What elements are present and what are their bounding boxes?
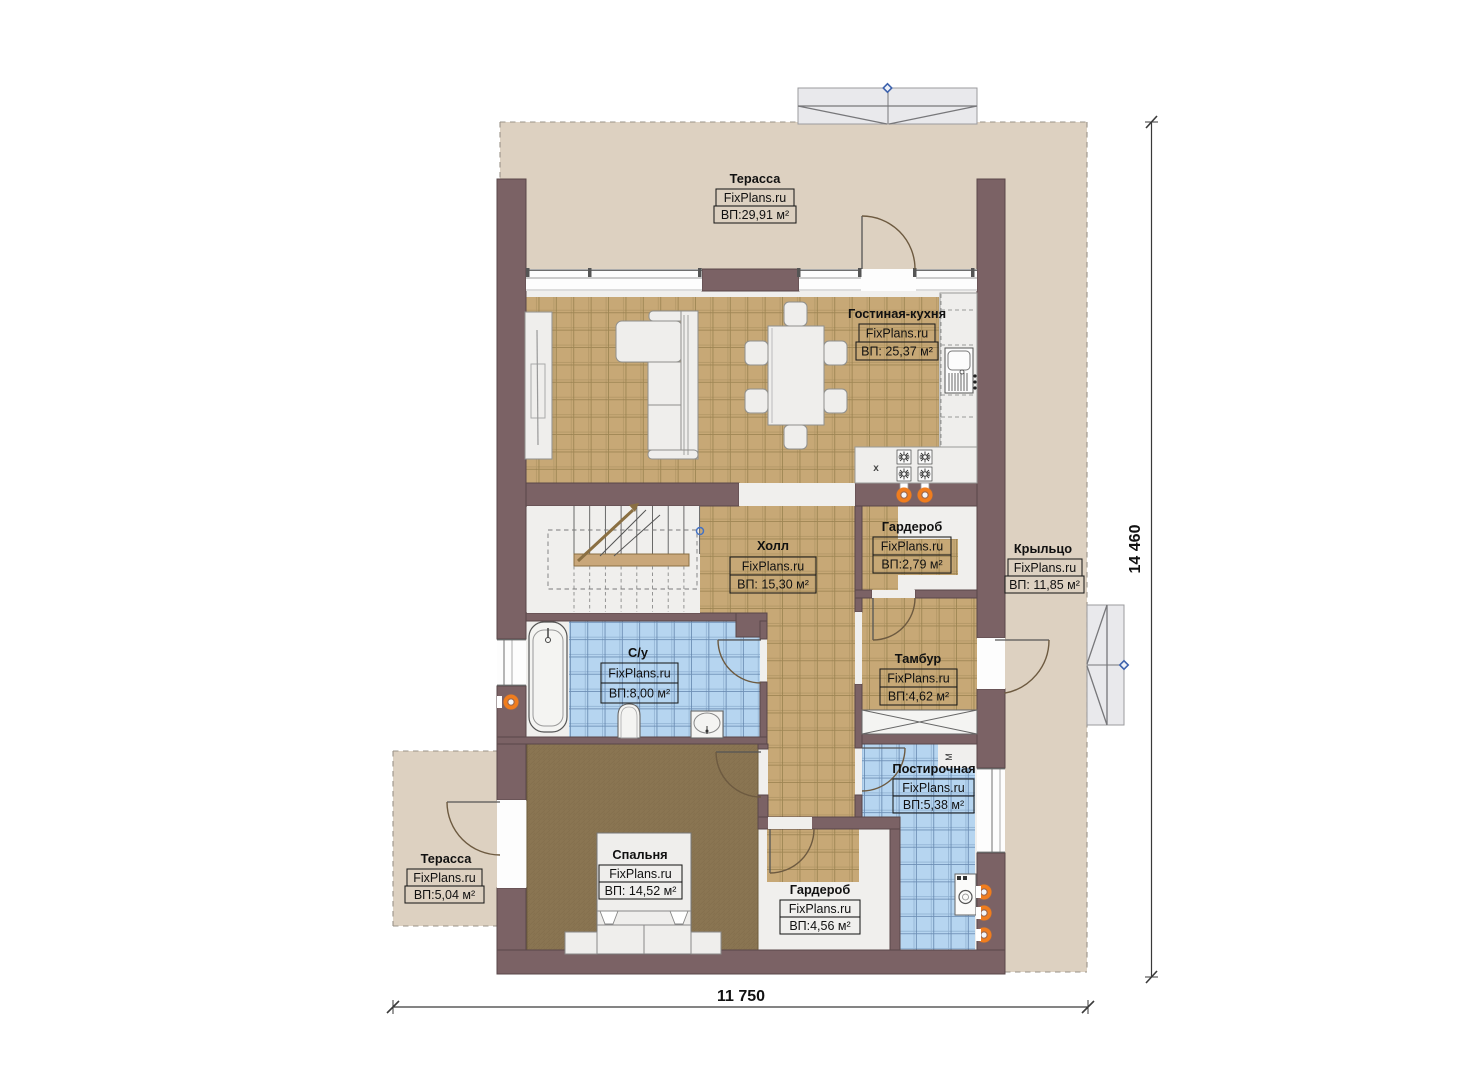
svg-text:ВП: 14,52 м²: ВП: 14,52 м² <box>605 884 677 898</box>
svg-text:С/у: С/у <box>628 645 649 660</box>
svg-text:FixPlans.ru: FixPlans.ru <box>724 191 787 205</box>
svg-text:ВП:29,91 м²: ВП:29,91 м² <box>721 208 789 222</box>
svg-text:ВП: 25,37 м²: ВП: 25,37 м² <box>861 345 933 359</box>
svg-text:Спальня: Спальня <box>612 847 667 862</box>
svg-text:FixPlans.ru: FixPlans.ru <box>609 867 672 881</box>
svg-text:Терасса: Терасса <box>421 851 473 866</box>
svg-text:Гардероб: Гардероб <box>790 882 851 897</box>
svg-text:FixPlans.ru: FixPlans.ru <box>881 540 944 554</box>
svg-text:FixPlans.ru: FixPlans.ru <box>789 902 852 916</box>
svg-text:Тамбур: Тамбур <box>895 651 942 666</box>
svg-text:Гостиная-кухня: Гостиная-кухня <box>848 306 946 321</box>
svg-text:ВП:2,79 м²: ВП:2,79 м² <box>881 558 942 572</box>
svg-text:FixPlans.ru: FixPlans.ru <box>413 871 476 885</box>
svg-text:Постирочная: Постирочная <box>892 761 975 776</box>
svg-text:ВП:5,38 м²: ВП:5,38 м² <box>903 798 964 812</box>
svg-text:FixPlans.ru: FixPlans.ru <box>887 672 950 686</box>
svg-text:FixPlans.ru: FixPlans.ru <box>866 327 929 341</box>
svg-text:ВП: 15,30 м²: ВП: 15,30 м² <box>737 578 809 592</box>
svg-text:Терасса: Терасса <box>730 171 782 186</box>
svg-text:ВП:4,56 м²: ВП:4,56 м² <box>789 919 850 933</box>
svg-text:Гардероб: Гардероб <box>882 519 943 534</box>
svg-text:FixPlans.ru: FixPlans.ru <box>902 781 965 795</box>
svg-text:Крыльцо: Крыльцо <box>1014 541 1072 556</box>
svg-text:FixPlans.ru: FixPlans.ru <box>742 560 805 574</box>
svg-text:Холл: Холл <box>757 538 789 553</box>
svg-text:ВП:4,62 м²: ВП:4,62 м² <box>888 690 949 704</box>
svg-text:FixPlans.ru: FixPlans.ru <box>608 667 671 681</box>
svg-text:ВП:8,00 м²: ВП:8,00 м² <box>609 687 670 701</box>
svg-text:ВП: 11,85 м²: ВП: 11,85 м² <box>1009 578 1080 592</box>
svg-text:М: М <box>944 753 954 761</box>
svg-text:FixPlans.ru: FixPlans.ru <box>1014 561 1077 575</box>
svg-text:14 460: 14 460 <box>1127 524 1144 573</box>
svg-text:x: x <box>873 463 879 474</box>
svg-text:11 750: 11 750 <box>717 988 765 1005</box>
svg-text:ВП:5,04 м²: ВП:5,04 м² <box>414 888 475 902</box>
